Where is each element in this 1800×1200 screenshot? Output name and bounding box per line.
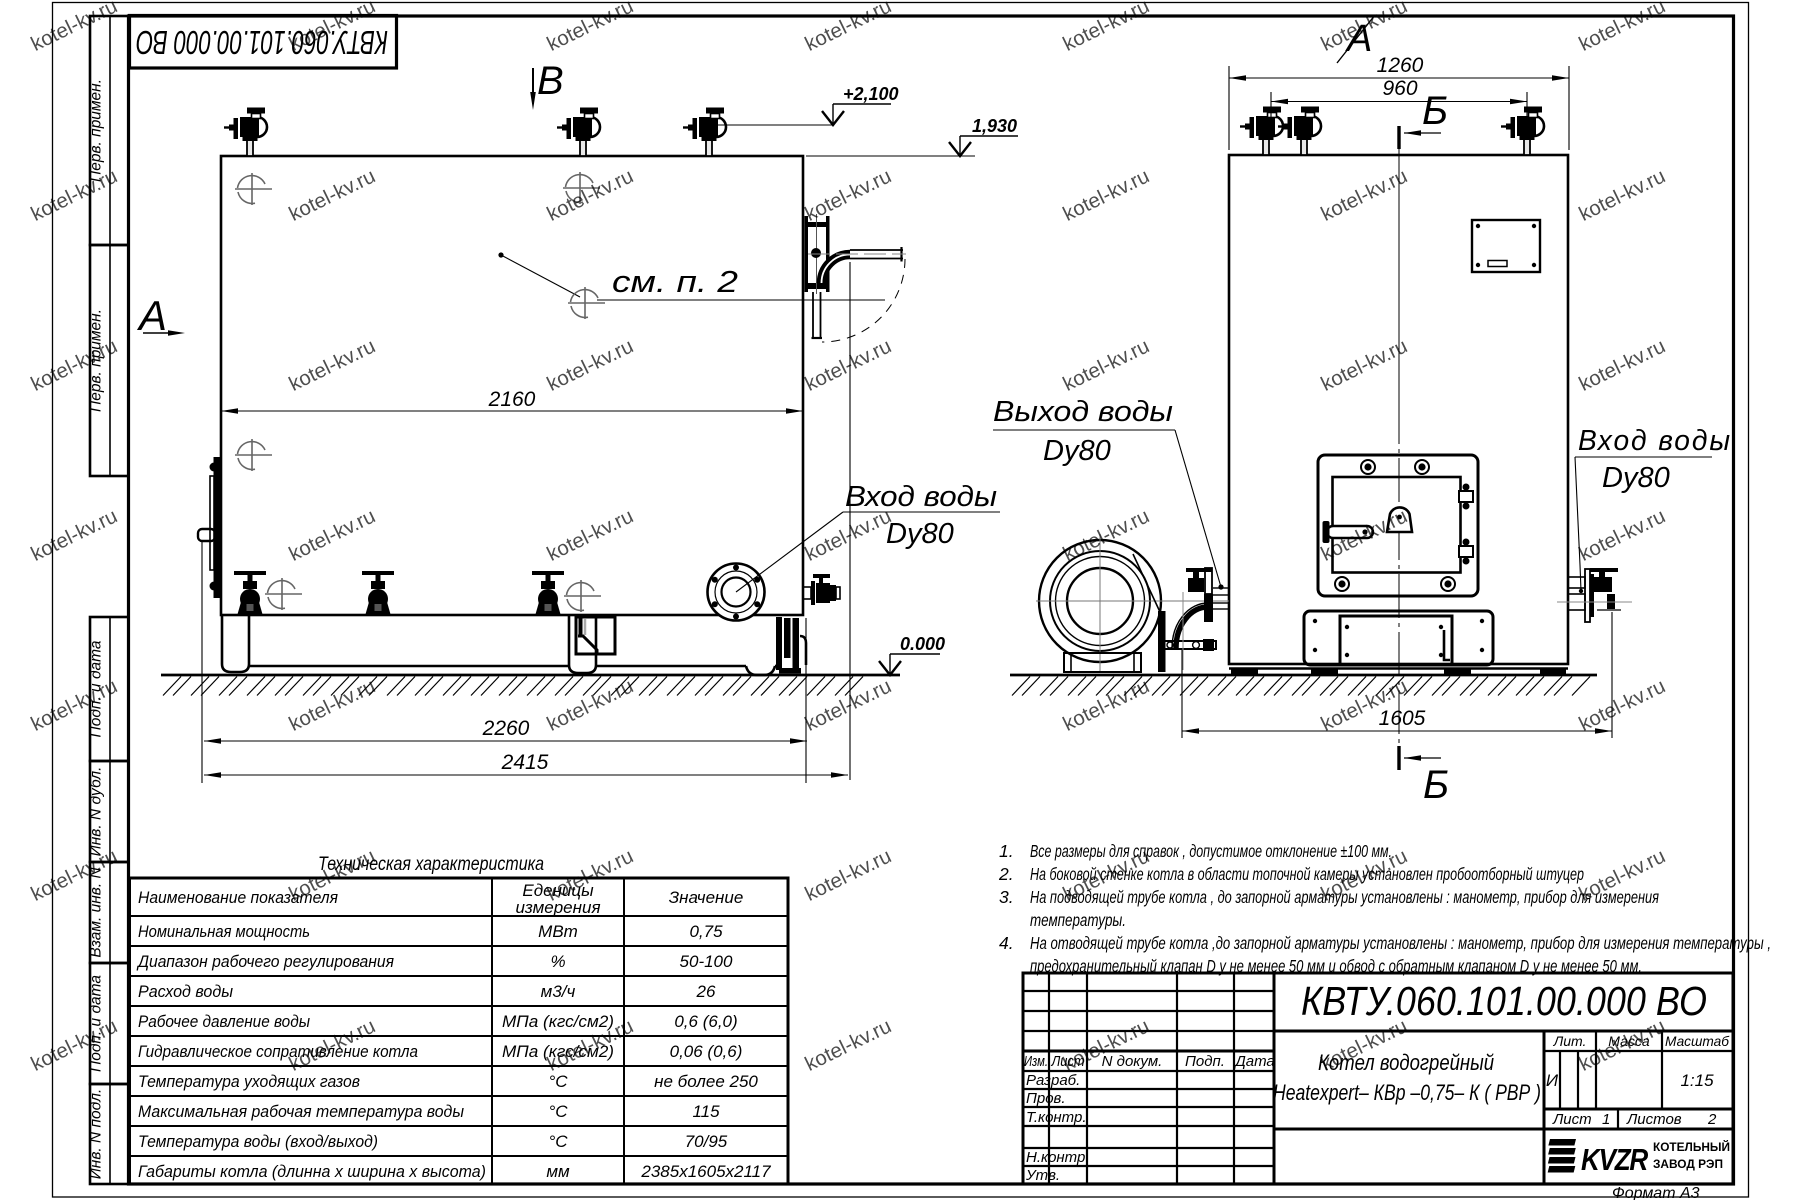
svg-text:Температура воды (вход/выход): Температура воды (вход/выход) bbox=[138, 1132, 378, 1151]
svg-text:Максимальная рабочая температу: Максимальная рабочая температура воды bbox=[138, 1102, 464, 1121]
svg-text:Подп.: Подп. bbox=[1185, 1053, 1225, 1070]
svg-text:1605: 1605 bbox=[1379, 707, 1426, 730]
svg-text:0,06 (0,6): 0,06 (0,6) bbox=[670, 1042, 743, 1061]
svg-text:Диапазон рабочего регулировани: Диапазон рабочего регулирования bbox=[136, 952, 394, 971]
svg-text:Перв. примен.: Перв. примен. bbox=[88, 79, 105, 182]
svg-text:Инв. N подл.: Инв. N подл. bbox=[88, 1089, 105, 1180]
svg-text:Все размеры для справок , допу: Все размеры для справок , допустимое отк… bbox=[1030, 841, 1392, 861]
svg-text:2415: 2415 bbox=[501, 751, 549, 774]
svg-text:Утв.: Утв. bbox=[1025, 1167, 1060, 1184]
svg-text:2: 2 bbox=[1707, 1111, 1717, 1128]
svg-text:КВТУ.060.101.00.000 ВО: КВТУ.060.101.00.000 ВО bbox=[1301, 978, 1707, 1024]
svg-text:1260: 1260 bbox=[1377, 54, 1424, 77]
svg-text:В: В bbox=[537, 59, 564, 103]
svg-text:Б: Б bbox=[1422, 89, 1448, 133]
svg-text:Dу80: Dу80 bbox=[886, 518, 954, 550]
svg-text:Листов: Листов bbox=[1626, 1111, 1682, 1128]
svg-text:26: 26 bbox=[696, 982, 716, 1001]
svg-text:Расход воды: Расход воды bbox=[138, 982, 233, 1001]
svg-text:Номинальная мощность: Номинальная мощность bbox=[138, 922, 310, 941]
svg-text:И: И bbox=[1546, 1071, 1559, 1090]
svg-text:1,930: 1,930 bbox=[972, 116, 1017, 136]
svg-text:Б: Б bbox=[1423, 763, 1449, 807]
svg-text:°С: °С bbox=[548, 1102, 568, 1121]
svg-text:70/95: 70/95 bbox=[685, 1132, 728, 1151]
svg-text:см. п. 2: см. п. 2 bbox=[612, 264, 738, 299]
svg-text:мм: мм bbox=[546, 1162, 570, 1181]
svg-text:Лит.: Лит. bbox=[1553, 1033, 1587, 1049]
svg-text:3.: 3. bbox=[999, 887, 1014, 907]
svg-text:°С: °С bbox=[548, 1072, 568, 1091]
svg-text:2260: 2260 bbox=[482, 717, 530, 740]
svg-text:Разраб.: Разраб. bbox=[1026, 1072, 1080, 1089]
svg-text:Значение: Значение bbox=[669, 888, 744, 907]
svg-text:Н.контр.: Н.контр. bbox=[1026, 1149, 1090, 1166]
svg-text:Dу80: Dу80 bbox=[1043, 435, 1111, 467]
svg-text:2.: 2. bbox=[998, 864, 1014, 884]
svg-text:0,6 (6,0): 0,6 (6,0) bbox=[674, 1012, 737, 1031]
svg-text:Вход воды: Вход воды bbox=[1578, 425, 1732, 457]
svg-text:+2,100: +2,100 bbox=[843, 84, 899, 104]
svg-text:Гидравлическое сопративление к: Гидравлическое сопративление котла bbox=[138, 1042, 418, 1061]
svg-text:Габариты котла (длинна х ширин: Габариты котла (длинна х ширина х высота… bbox=[138, 1162, 486, 1181]
svg-text:температуры.: температуры. bbox=[1030, 910, 1126, 930]
svg-text:Рабочее давление воды: Рабочее давление воды bbox=[138, 1012, 310, 1031]
svg-text:50-100: 50-100 bbox=[680, 952, 733, 971]
svg-text:Формат А3: Формат А3 bbox=[1612, 1185, 1700, 1200]
svg-text:0.000: 0.000 bbox=[900, 634, 945, 654]
svg-text:м3/ч: м3/ч bbox=[541, 982, 576, 1001]
svg-text:2160: 2160 bbox=[488, 388, 536, 411]
svg-text:Лист: Лист bbox=[1552, 1111, 1592, 1128]
svg-text:не более 250: не более 250 bbox=[654, 1072, 758, 1091]
svg-text:0,75: 0,75 bbox=[689, 922, 723, 941]
svg-text:115: 115 bbox=[692, 1102, 720, 1121]
svg-text:%: % bbox=[550, 952, 565, 971]
svg-text:Т.контр.: Т.контр. bbox=[1026, 1109, 1087, 1126]
svg-text:Масштаб: Масштаб bbox=[1665, 1033, 1730, 1049]
svg-text:ЗАВОД РЭП: ЗАВОД РЭП bbox=[1653, 1157, 1723, 1171]
svg-text:Температура уходящих газов: Температура уходящих газов bbox=[138, 1072, 360, 1091]
svg-text:Пров.: Пров. bbox=[1026, 1090, 1066, 1107]
svg-text:На отводящей трубе котла ,до з: На отводящей трубе котла ,до запорной ар… bbox=[1030, 933, 1771, 953]
svg-text:2385х1605х2117: 2385х1605х2117 bbox=[640, 1162, 771, 1181]
svg-text:1:15: 1:15 bbox=[1680, 1071, 1714, 1090]
svg-text:МВт: МВт bbox=[538, 922, 578, 941]
svg-text:°С: °С bbox=[548, 1132, 568, 1151]
svg-text:960: 960 bbox=[1382, 77, 1417, 100]
svg-text:КОТЕЛЬНЫЙ: КОТЕЛЬНЫЙ bbox=[1653, 1139, 1730, 1154]
svg-text:Выход воды: Выход воды bbox=[993, 396, 1173, 428]
svg-text:4.: 4. bbox=[999, 933, 1014, 953]
svg-text:KVZR: KVZR bbox=[1581, 1142, 1649, 1177]
svg-text:Инв. N дубл.: Инв. N дубл. bbox=[88, 767, 105, 857]
svg-text:1: 1 bbox=[1602, 1111, 1610, 1128]
svg-text:КВТУ.060.101.00.000 ВО: КВТУ.060.101.00.000 ВО bbox=[136, 24, 388, 61]
svg-text:Heatexpert– КВр –0,75– К ( РВР: Heatexpert– КВр –0,75– К ( РВР ) bbox=[1273, 1080, 1541, 1105]
svg-text:А: А bbox=[136, 292, 167, 339]
svg-text:Dу80: Dу80 bbox=[1602, 462, 1670, 494]
svg-text:Дата: Дата bbox=[1233, 1053, 1275, 1070]
svg-text:1.: 1. bbox=[999, 841, 1014, 861]
svg-text:Изм.: Изм. bbox=[1024, 1053, 1048, 1070]
svg-text:Взам. инв. N: Взам. инв. N bbox=[88, 867, 105, 958]
svg-text:Вход воды: Вход воды bbox=[845, 481, 997, 513]
